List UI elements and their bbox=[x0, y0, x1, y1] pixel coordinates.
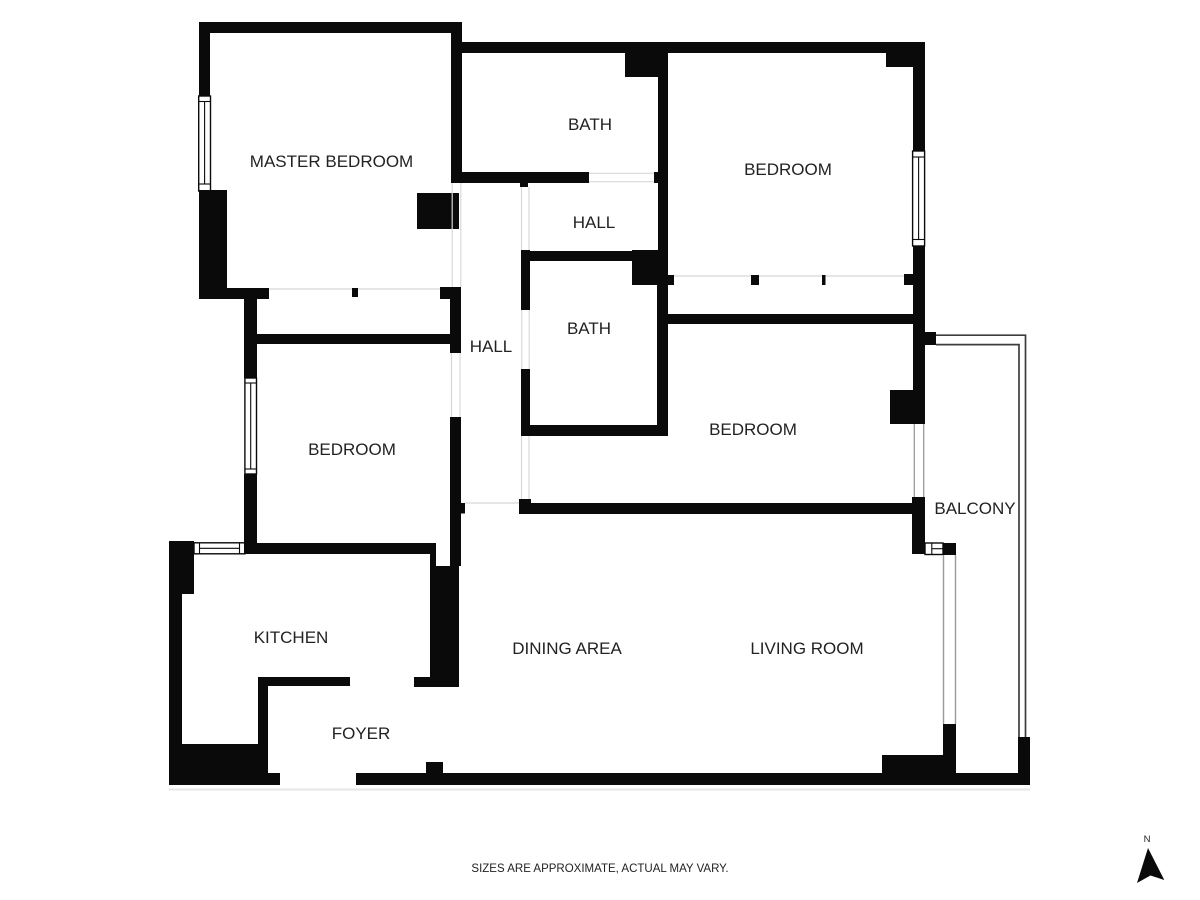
svg-text:HALL: HALL bbox=[573, 213, 616, 232]
svg-text:BEDROOM: BEDROOM bbox=[308, 440, 396, 459]
svg-text:BEDROOM: BEDROOM bbox=[744, 160, 832, 179]
svg-text:BATH: BATH bbox=[567, 319, 611, 338]
svg-text:KITCHEN: KITCHEN bbox=[254, 628, 329, 647]
svg-text:BATH: BATH bbox=[568, 115, 612, 134]
svg-text:FOYER: FOYER bbox=[332, 724, 391, 743]
svg-text:HALL: HALL bbox=[470, 337, 513, 356]
svg-text:DINING AREA: DINING AREA bbox=[512, 639, 622, 658]
svg-text:LIVING ROOM: LIVING ROOM bbox=[750, 639, 863, 658]
svg-text:MASTER BEDROOM: MASTER BEDROOM bbox=[250, 152, 413, 171]
svg-text:SIZES ARE APPROXIMATE, ACTUAL: SIZES ARE APPROXIMATE, ACTUAL MAY VARY. bbox=[471, 863, 728, 875]
svg-text:BEDROOM: BEDROOM bbox=[709, 420, 797, 439]
svg-text:BALCONY: BALCONY bbox=[934, 499, 1015, 518]
svg-text:N: N bbox=[1144, 834, 1151, 845]
